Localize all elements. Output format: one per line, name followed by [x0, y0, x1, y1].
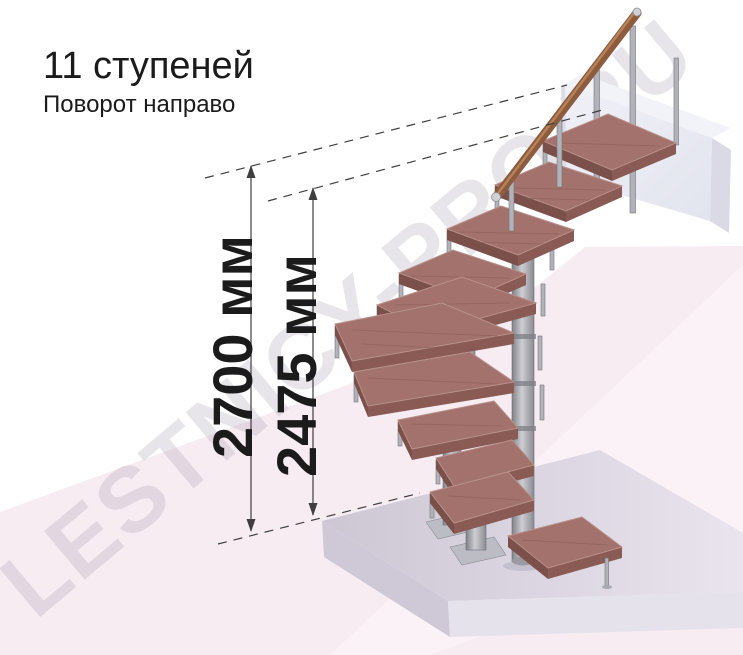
dimension-label-floor-height: 2475 мм [265, 254, 328, 477]
staircase-illustration: LESTNICY-PRO.RU [0, 0, 743, 655]
dimension-label-total-height: 2700 мм [201, 235, 264, 458]
page-subtitle: Поворот направо [43, 91, 235, 118]
staircase-diagram: LESTNICY-PRO.RU [0, 0, 743, 655]
page-title: 11 ступеней [43, 45, 254, 87]
handrail-top-cap [633, 8, 641, 16]
handrail-bottom-cap [492, 193, 501, 202]
